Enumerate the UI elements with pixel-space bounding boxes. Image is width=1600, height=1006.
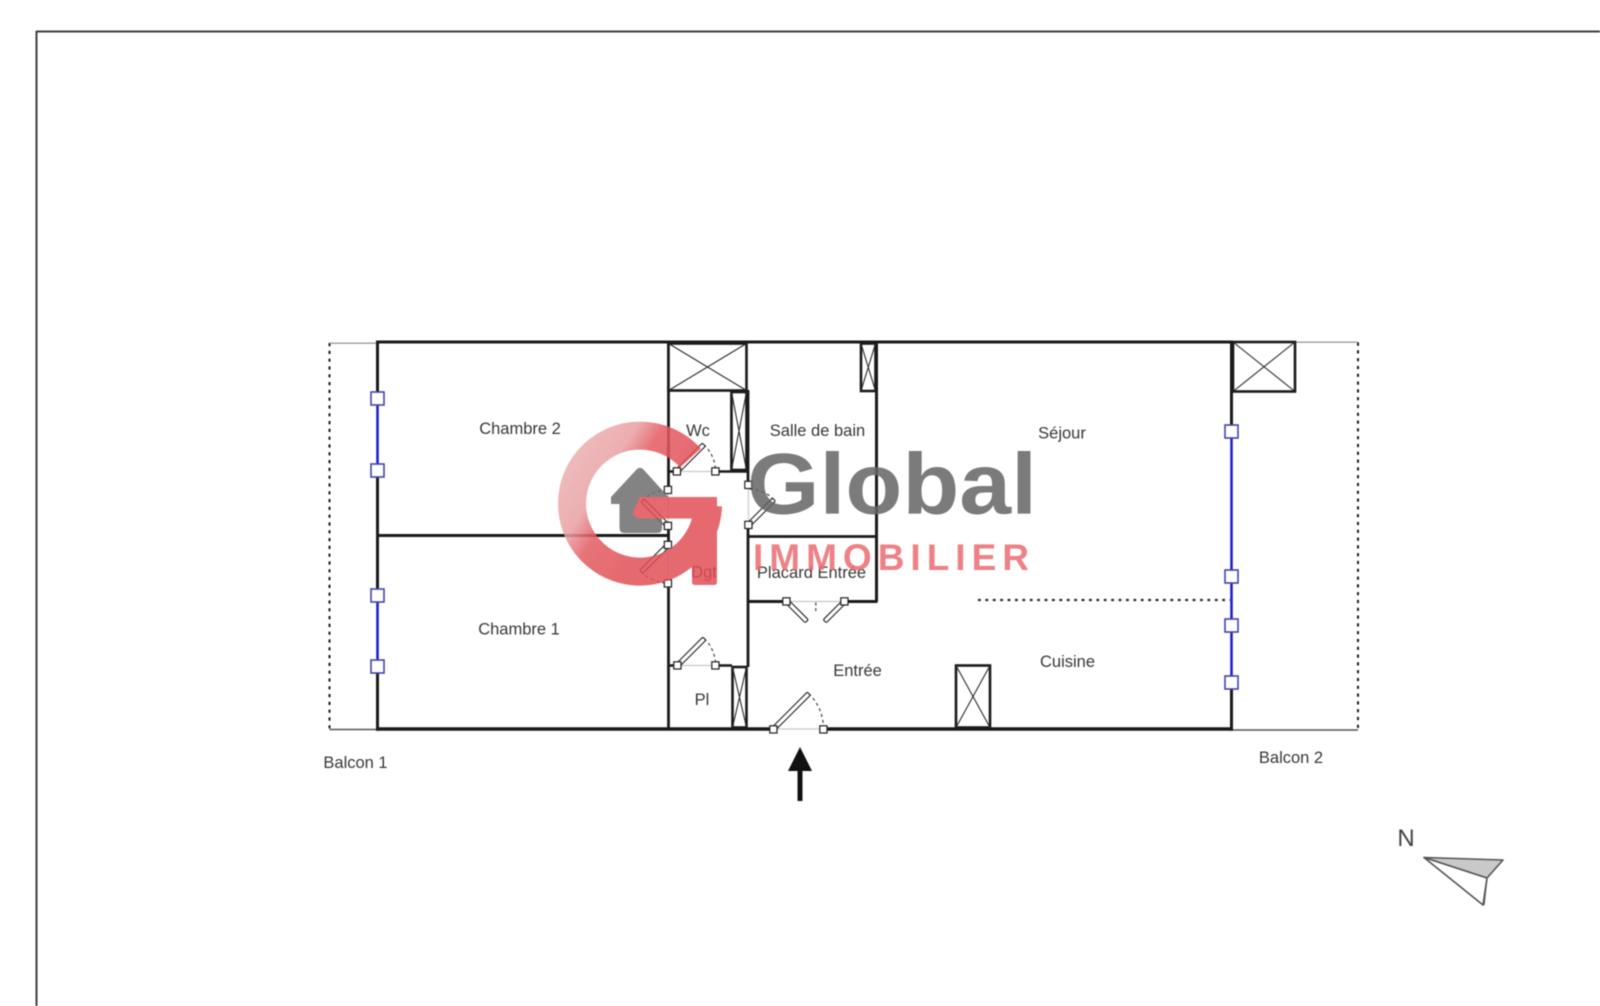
svg-text:Pl: Pl [695, 691, 710, 709]
svg-text:Entrée: Entrée [833, 662, 882, 680]
svg-text:Chambre 1: Chambre 1 [478, 621, 560, 639]
svg-text:IMMOBILIER: IMMOBILIER [753, 537, 1029, 578]
svg-text:Cuisine: Cuisine [1040, 653, 1095, 671]
svg-text:Séjour: Séjour [1038, 425, 1086, 443]
svg-text:Balcon 1: Balcon 1 [323, 754, 387, 772]
svg-text:N: N [1397, 825, 1414, 852]
svg-text:Wc: Wc [686, 422, 710, 440]
svg-text:Global: Global [747, 437, 1037, 533]
svg-text:Chambre 2: Chambre 2 [479, 420, 561, 438]
svg-text:Balcon 2: Balcon 2 [1259, 749, 1323, 767]
